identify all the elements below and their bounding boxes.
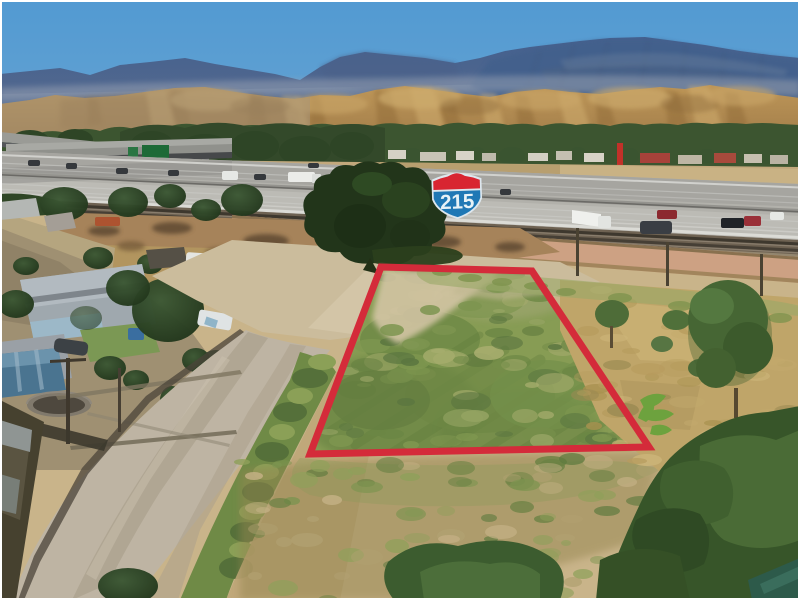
svg-text:215: 215 [440,190,475,214]
